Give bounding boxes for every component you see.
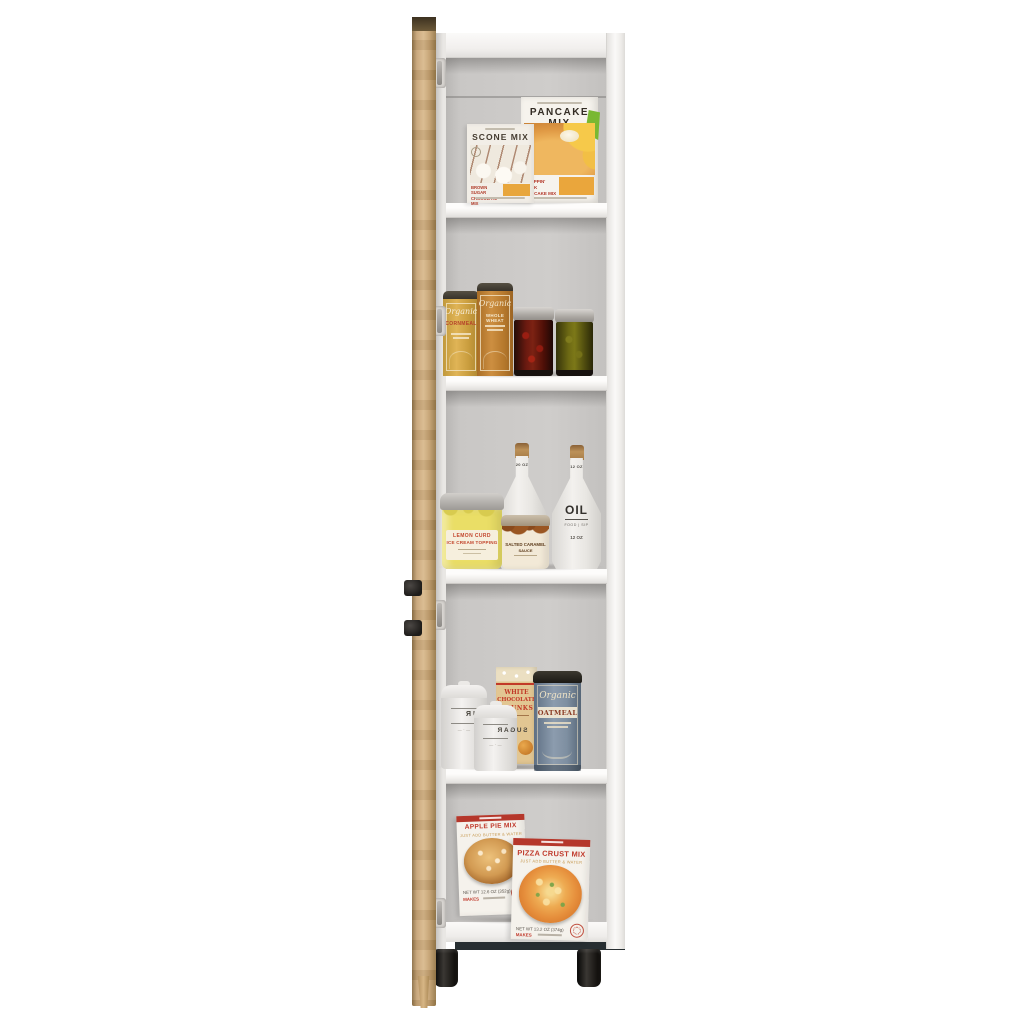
lemon-curd-line2: ICE CREAM TOPPING <box>446 540 498 545</box>
jar-base <box>556 370 593 376</box>
cork-stopper <box>515 443 529 458</box>
instructions-panel <box>503 184 530 196</box>
apple-pie-net-weight: NET WT 12.6 OZ (352g) <box>463 888 511 895</box>
cabinet-right-side-panel <box>606 33 625 949</box>
oil-neck-size: 12 OZ <box>552 464 601 469</box>
jar-base <box>514 370 553 376</box>
canister-lid <box>441 685 487 699</box>
pizza-crust-mix-box: PIZZA CRUST MIX JUST ADD BUTTER & WATER … <box>511 838 591 941</box>
caramel-sauce-jar: SALTED CARAMEL SAUCE <box>502 515 549 569</box>
pizza-image <box>518 864 582 924</box>
open-door-edge <box>412 20 436 1006</box>
jar-lid <box>555 309 594 323</box>
shelf-2 <box>446 376 607 391</box>
whole-wheat-canister: Organic WHOLE WHEAT <box>477 283 513 376</box>
caramel-line1: SALTED CARAMEL <box>502 542 549 547</box>
pancake-stack-image <box>524 123 595 175</box>
wheat-label: WHOLE WHEAT <box>477 313 513 323</box>
door-top-edge <box>412 17 436 31</box>
cookie-image <box>518 740 533 755</box>
oatmeal-label: OATMEAL <box>534 709 581 717</box>
organic-script: Organic <box>443 307 479 316</box>
butter-pat <box>560 130 579 142</box>
base-shadow-recess <box>455 942 625 950</box>
jar-lid <box>501 515 550 526</box>
net-weight-line <box>531 197 587 199</box>
jar-lid <box>440 493 504 510</box>
cornmeal-label: CORNMEAL <box>443 321 479 327</box>
lemon-curd-line1: LEMON CURD <box>446 533 498 539</box>
scone-box-title: SCONE MIX <box>467 132 534 142</box>
oil-bottle: 12 OZ OIL FOOD | SIP 12 OZ <box>552 445 601 569</box>
organic-script: Organic <box>534 691 581 701</box>
caramel-line2: SAUCE <box>502 548 549 553</box>
right-foot <box>577 949 601 987</box>
round-stamp-badge <box>471 147 481 157</box>
chip-speckle-art <box>496 667 537 682</box>
shelf-4 <box>446 769 607 784</box>
vinegar-neck-size: 20 OZ <box>498 462 546 467</box>
left-foot <box>434 949 458 987</box>
pizza-makes: MAKES <box>516 932 532 937</box>
oil-label: OIL <box>552 503 601 517</box>
cork-stopper <box>570 445 584 460</box>
door-knob-upper <box>404 580 422 596</box>
shelf-3 <box>446 569 607 584</box>
scone-variant-label: BROWN SUGAR CHOCOLATE MIX <box>471 185 501 207</box>
oil-size: 12 OZ <box>552 535 601 540</box>
cabinet-top-panel <box>436 33 625 58</box>
brand-line <box>537 102 582 104</box>
cabinet-left-frame <box>436 33 446 949</box>
wheat-sketch <box>483 351 507 369</box>
wheat-sketch <box>449 351 473 369</box>
oatmeal-canister: Organic OATMEAL <box>534 671 581 771</box>
green-pesto-jar <box>556 309 593 376</box>
scone-mix-box: SCONE MIX BROWN SUGAR CHOCOLATE MIX <box>467 124 534 203</box>
chocolate-line1: WHITE <box>496 689 537 696</box>
round-stamp-badge <box>570 924 584 938</box>
sugar-canister: SUGAR — · — <box>474 701 517 771</box>
caramel-drips <box>502 524 549 541</box>
brand-line <box>485 128 515 130</box>
net-weight-line <box>475 197 525 199</box>
jar-contents <box>514 320 553 372</box>
apple-pie-title: APPLE PIE MIX <box>457 822 525 831</box>
pizza-subtitle: JUST ADD BUTTER & WATER <box>513 858 590 865</box>
red-preserve-jar <box>514 307 553 376</box>
lemon-curd-jar: LEMON CURD ICE CREAM TOPPING <box>442 493 502 569</box>
jar-lid <box>513 307 554 321</box>
door-knob-lower <box>404 620 422 636</box>
pantry-cabinet-photo: PANCAKE MIX FLAPPIN' JACK PANCAKE MIX SC… <box>0 0 1024 1024</box>
canister-lid <box>474 705 517 719</box>
instructions-panel <box>559 177 594 195</box>
cornmeal-canister: Organic CORNMEAL <box>443 291 479 376</box>
organic-script: Organic <box>477 299 513 308</box>
apple-pie-makes: MAKES <box>463 896 479 902</box>
wheat-illustration <box>542 739 572 759</box>
canister-lid <box>533 671 582 683</box>
jar-label: LEMON CURD ICE CREAM TOPPING <box>446 530 498 560</box>
oil-tagline: FOOD | SIP <box>552 523 601 527</box>
jar-contents <box>556 322 593 372</box>
